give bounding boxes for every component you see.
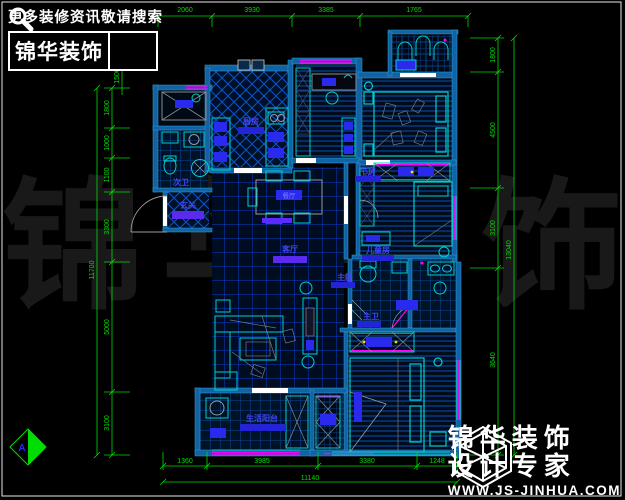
dim-value: 3985 [254, 458, 270, 465]
dim-value: 1248 [429, 458, 445, 465]
dimension-top: 2060 3930 3385 1765 [155, 7, 471, 27]
room-label-master: 主卧 [337, 272, 353, 282]
room-label-dining: 餐厅 [283, 191, 297, 200]
room-label-guest-bath: 次卫 [173, 177, 189, 187]
room-label-study: 书房 [360, 166, 376, 176]
room-label-master-bath: 主卫 [363, 311, 379, 321]
promo-brand-box: 锦华装饰 [8, 31, 158, 71]
promo-brand-name: 锦华装饰 [10, 33, 108, 69]
dim-value: 5000 [104, 319, 111, 335]
dim-value: 3640 [490, 352, 497, 368]
room-label-kids: 儿童房 [365, 245, 390, 255]
dim-total: 11700 [89, 260, 96, 279]
room-label-balcony: 生活阳台 [246, 413, 278, 423]
room-label-kitchen: 厨房 [243, 116, 259, 126]
entry-door [131, 196, 167, 232]
promo-watermark: 更多装修资讯敬请搜索 锦华装饰 [8, 6, 163, 71]
dim-value: 4500 [490, 122, 497, 138]
brand-watermark: 锦华装饰 设计专家 WWW.JS-JINHUA.COM [448, 424, 621, 498]
dim-value: 1100 [104, 167, 111, 182]
section-marker-letter: A [18, 443, 25, 454]
dim-value: 3930 [244, 7, 260, 14]
dim-value: 2060 [177, 7, 193, 14]
dim-total: 13040 [506, 240, 513, 260]
dim-value: 3100 [490, 220, 497, 236]
dim-value: 1765 [406, 7, 422, 14]
dim-value: 1800 [490, 47, 497, 63]
dim-value: 3385 [318, 7, 334, 14]
section-marker: A [10, 429, 46, 465]
dimension-right: 1800 4500 3100 3640 13040 [470, 35, 517, 458]
dim-value: 1800 [104, 100, 111, 116]
room-label-entry: 玄关 [180, 200, 196, 210]
dim-value: 3300 [104, 219, 111, 235]
dimension-left: 1800 1000 1100 3300 5000 3100 11700 1500 [89, 55, 130, 458]
room-label-living: 客厅 [281, 244, 298, 254]
dim-total: 11140 [301, 475, 320, 482]
dim-value: 1360 [177, 458, 193, 465]
dim-value: 3380 [359, 458, 375, 465]
dimension-bottom: 1360 3985 3380 1248 11140 [160, 452, 460, 485]
dim-value: 3100 [104, 415, 111, 431]
dim-value: 1000 [104, 135, 111, 151]
cad-floorplan-canvas: 锦 华 装 饰 [0, 0, 625, 500]
search-icon [110, 33, 148, 69]
